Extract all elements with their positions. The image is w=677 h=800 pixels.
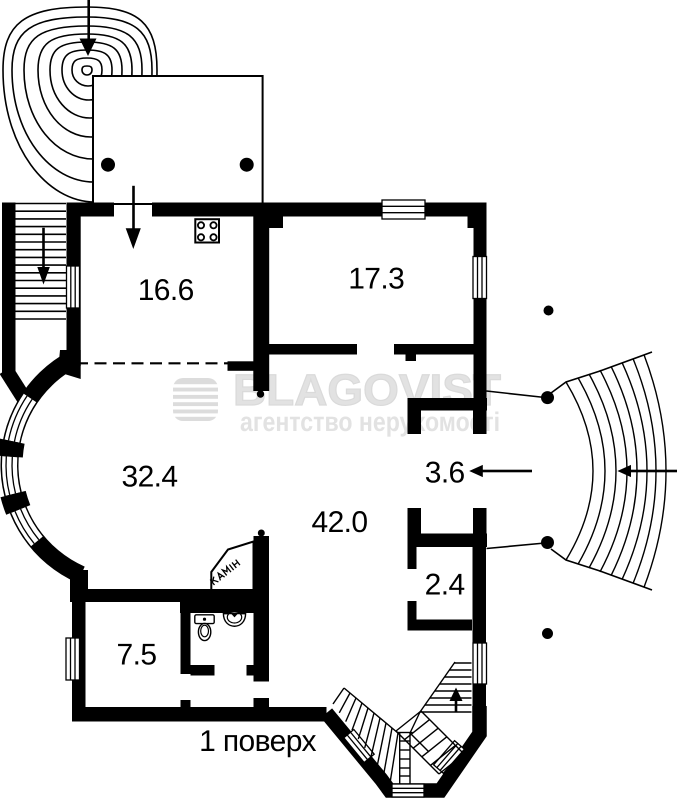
- svg-text:1 поверх: 1 поверх: [199, 725, 316, 758]
- svg-text:агентство нерухомості: агентство нерухомості: [240, 407, 500, 437]
- svg-text:17.3: 17.3: [348, 263, 404, 296]
- svg-text:16.6: 16.6: [138, 274, 194, 307]
- svg-text:3.6: 3.6: [425, 457, 465, 490]
- svg-text:32.4: 32.4: [122, 460, 178, 493]
- svg-text:7.5: 7.5: [117, 638, 157, 671]
- svg-text:2.4: 2.4: [425, 569, 465, 602]
- svg-text:42.0: 42.0: [312, 506, 368, 539]
